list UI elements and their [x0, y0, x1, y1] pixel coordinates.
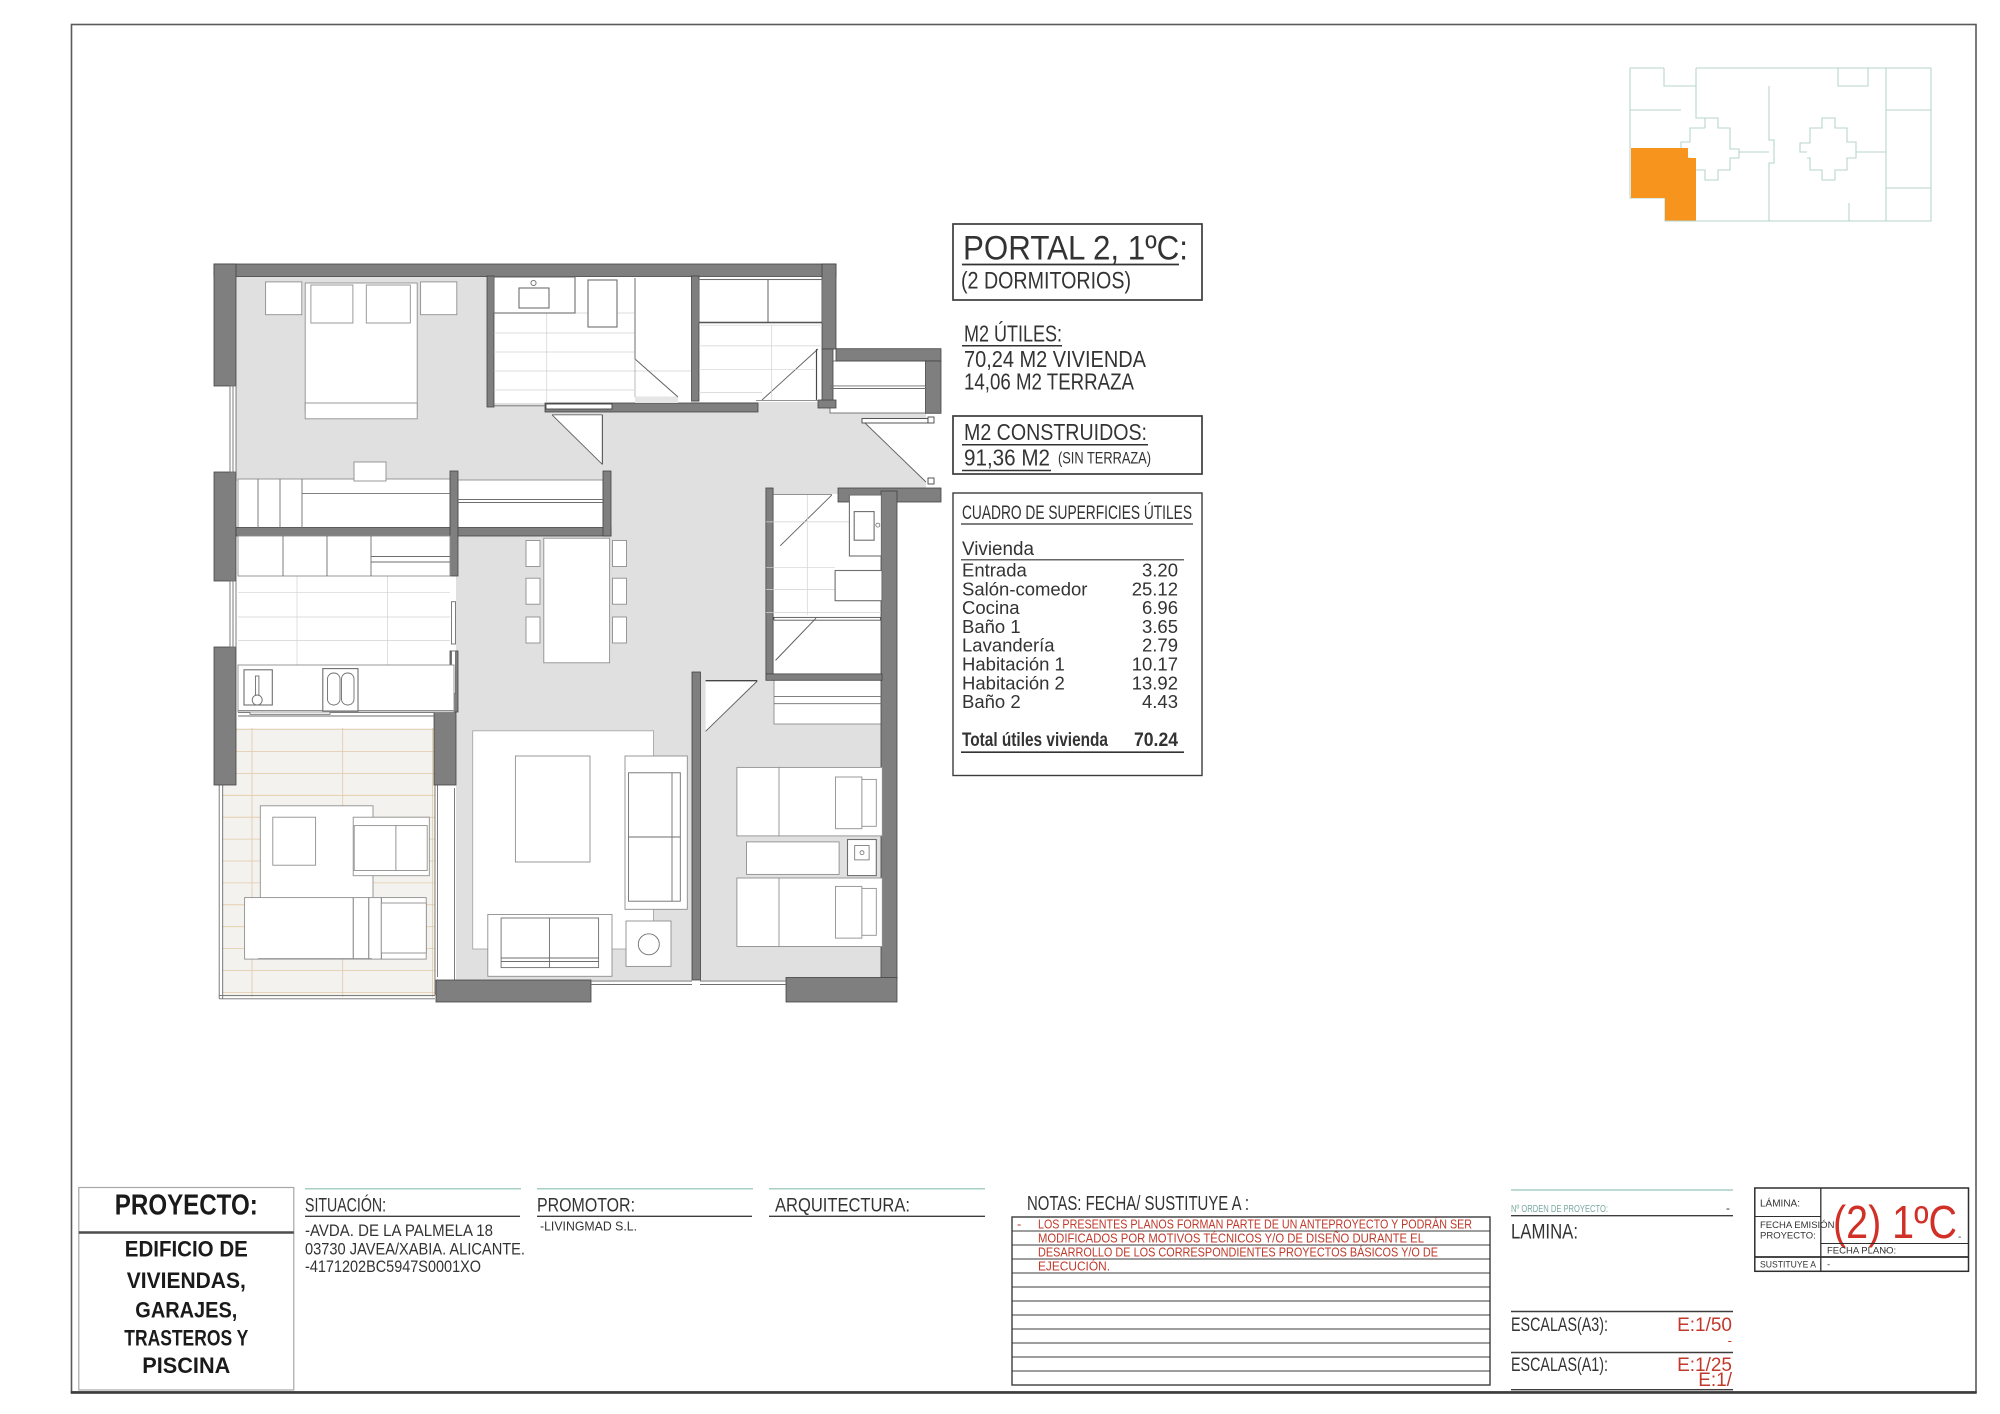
- svg-text:E:1/50: E:1/50: [1677, 1315, 1732, 1336]
- svg-text:ARQUITECTURA:: ARQUITECTURA:: [775, 1196, 910, 1217]
- svg-text:EJECUCIÓN.: EJECUCIÓN.: [1038, 1259, 1110, 1274]
- svg-text:ESCALAS(A3):: ESCALAS(A3):: [1511, 1315, 1608, 1336]
- svg-text:-: -: [1017, 1217, 1021, 1232]
- svg-text:FECHA EMISIÓN: FECHA EMISIÓN: [1760, 1220, 1835, 1231]
- svg-text:SITUACIÓN:: SITUACIÓN:: [305, 1195, 386, 1217]
- svg-text:VIVIENDAS,: VIVIENDAS,: [127, 1268, 246, 1293]
- svg-text:-: -: [1726, 1201, 1730, 1215]
- svg-text:(SIN TERRAZA): (SIN TERRAZA): [1058, 450, 1151, 468]
- svg-text:LOS PRESENTES PLANOS FORMAN PA: LOS PRESENTES PLANOS FORMAN PARTE DE UN …: [1038, 1217, 1472, 1232]
- svg-text:Total útiles vivienda: Total útiles vivienda: [962, 730, 1108, 751]
- svg-text:LÁMINA:: LÁMINA:: [1760, 1197, 1800, 1210]
- svg-text:MODIFICADOS POR MOTIVOS TÉCNI: MODIFICADOS POR MOTIVOS TÉCNICOS Y/O DE …: [1038, 1231, 1424, 1246]
- svg-text:PISCINA: PISCINA: [142, 1353, 230, 1378]
- svg-text:PROMOTOR:: PROMOTOR:: [537, 1196, 635, 1217]
- svg-text:PORTAL 2, 1ºC:: PORTAL 2, 1ºC:: [963, 230, 1188, 268]
- svg-text:-LIVINGMAD S.L.: -LIVINGMAD S.L.: [540, 1219, 637, 1234]
- svg-text:PROYECTO:: PROYECTO:: [115, 1190, 258, 1222]
- svg-text:E:1/: E:1/: [1698, 1370, 1733, 1391]
- svg-text:03730 JAVEA/XABIA. ALICANTE.: 03730 JAVEA/XABIA. ALICANTE.: [305, 1241, 525, 1259]
- svg-text:ESCALAS(A1):: ESCALAS(A1):: [1511, 1355, 1608, 1376]
- svg-text:(2) 1ºC: (2) 1ºC: [1833, 1196, 1957, 1248]
- svg-text:14,06 M2 TERRAZA: 14,06 M2 TERRAZA: [964, 369, 1135, 395]
- svg-text:DESARROLLO DE LOS CORRESPONDIE: DESARROLLO DE LOS CORRESPONDIENTES PROYE…: [1038, 1245, 1438, 1260]
- svg-text:M2 CONSTRUIDOS:: M2 CONSTRUIDOS:: [964, 419, 1147, 445]
- svg-text:EDIFICIO DE: EDIFICIO DE: [125, 1237, 248, 1262]
- svg-text:-AVDA. DE LA PALMELA 18: -AVDA. DE LA PALMELA 18: [305, 1222, 493, 1240]
- svg-text:(2 DORMITORIOS): (2 DORMITORIOS): [961, 268, 1131, 295]
- svg-text:-: -: [1728, 1333, 1732, 1348]
- svg-text:TRASTEROS Y: TRASTEROS Y: [124, 1326, 248, 1351]
- svg-text:SUSTITUYE A: SUSTITUYE A: [1760, 1260, 1817, 1271]
- svg-text:Baño 2: Baño 2: [962, 691, 1021, 712]
- svg-text:-: -: [1958, 1232, 1961, 1243]
- svg-text:4.43: 4.43: [1142, 691, 1178, 712]
- svg-text:M2 ÚTILES:: M2 ÚTILES:: [964, 321, 1062, 347]
- svg-text:Vivienda: Vivienda: [962, 539, 1034, 560]
- svg-text:-: -: [1827, 1260, 1830, 1271]
- svg-text:-: -: [1884, 1246, 1887, 1257]
- svg-text:CUADRO DE SUPERFICIES ÚTILES: CUADRO DE SUPERFICIES ÚTILES: [962, 501, 1192, 524]
- svg-text:PROYECTO:: PROYECTO:: [1760, 1231, 1816, 1242]
- svg-text:NOTAS: FECHA/ SUSTITUYE A :: NOTAS: FECHA/ SUSTITUYE A :: [1027, 1193, 1249, 1215]
- svg-text:-4171202BC5947S0001XO: -4171202BC5947S0001XO: [305, 1258, 481, 1276]
- svg-text:LAMINA:: LAMINA:: [1511, 1221, 1578, 1244]
- svg-text:91,36 M2: 91,36 M2: [964, 445, 1050, 471]
- svg-text:GARAJES,: GARAJES,: [135, 1298, 237, 1323]
- svg-text:70.24: 70.24: [1134, 730, 1178, 751]
- svg-text:Nº ORDEN DE PROYECTO:: Nº ORDEN DE PROYECTO:: [1511, 1203, 1608, 1215]
